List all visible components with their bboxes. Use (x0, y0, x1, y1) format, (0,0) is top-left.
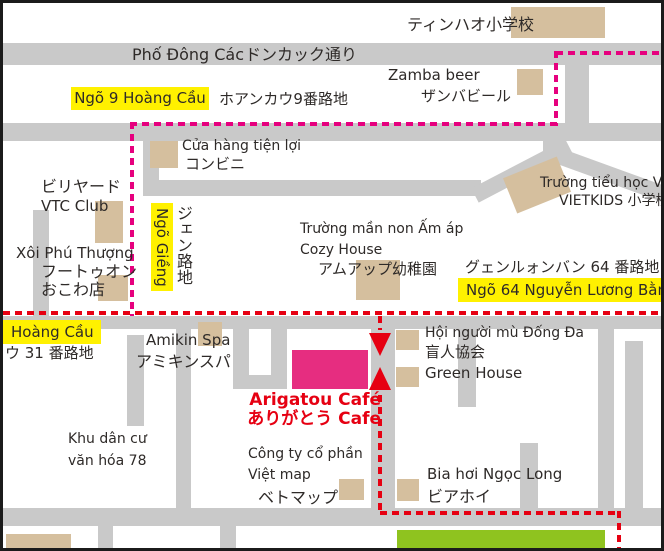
building-green-house (396, 367, 419, 387)
building-blind-association (396, 330, 419, 350)
road-bottom-stub-1 (98, 526, 113, 551)
label-ngo-gieng-jp: ジェン路地 (174, 205, 193, 297)
route-red-exit (617, 511, 621, 551)
building-bia-hoi (397, 479, 419, 501)
label-xoi-phu-thuong-jp2: おこわ店 (41, 280, 105, 299)
label-pho-dong-cac-vi: Phố Đông Các (132, 45, 244, 64)
label-ngo64-vi: Ngõ 64 Nguyễn Lương Bằng (458, 278, 664, 302)
label-blind-association-jp: 盲人協会 (425, 343, 485, 362)
label-ngo64-jp: グェンルォンバン 64 番路地 (465, 258, 659, 277)
road-conbini-horizontal (143, 180, 481, 196)
label-cozy-house-vi: Trường mần non Ấm áp (300, 220, 463, 239)
label-blind-association-vi: Hội người mù Đống Đa (425, 324, 584, 343)
label-pho-dong-cac-jp: ドンカック通り (245, 45, 357, 64)
arigatou-cafe-building (292, 350, 368, 389)
route-arrow-down-icon (369, 333, 391, 356)
road-short-vertical-left (127, 335, 144, 426)
label-cozy-house-en: Cozy House (300, 241, 382, 260)
label-khu-dan-cu-1: Khu dân cư (68, 430, 147, 449)
label-ngo9-hoang-cau: Ngõ 9 Hoàng Cầu (71, 87, 209, 110)
label-convenience-store-vi: Cửa hàng tiện lợi (182, 137, 301, 156)
road-right-vertical-2 (625, 341, 643, 509)
label-ngo-gieng: Ngõ Giềng (151, 203, 173, 291)
label-xoi-phu-thuong-vi: Xôi Phú Thượng (16, 244, 134, 263)
label-khu-dan-cu-2: văn hóa 78 (68, 452, 146, 471)
label-vtc-club-jp: ビリヤード (41, 177, 121, 196)
building-convenience-store (150, 141, 178, 168)
building-zamba-beer (517, 69, 543, 95)
label-vietkids-jp: VIETKIDS 小学校 (559, 192, 664, 211)
label-viet-map-2: Việt map (248, 466, 311, 485)
road-bottom-stub-2 (220, 526, 236, 551)
label-arigatou-cafe-en: Arigatou Café (199, 391, 381, 410)
label-amikin-spa-jp: アミキンスパ (136, 352, 231, 371)
label-zamba-beer-jp: ザンバビール (421, 87, 511, 106)
route-red-bottom (380, 511, 619, 515)
route-pink-across (130, 122, 558, 126)
label-bia-hoi-vi: Bia hơi Ngọc Long (427, 465, 562, 484)
label-xoi-phu-thuong-jp1: フートゥオン (41, 262, 137, 281)
route-pink-top (556, 51, 664, 55)
label-tinhao-school: ティンハオ小学校 (407, 15, 534, 34)
label-amikin-spa-en: Amikin Spa (146, 331, 230, 350)
label-viet-map-jp: ベトマップ (258, 488, 338, 507)
label-bia-hoi-jp: ビアホイ (427, 487, 491, 506)
label-viet-map-1: Công ty cổ phần (248, 445, 363, 464)
building-viet-map (339, 479, 364, 500)
building-bottom-left (6, 534, 71, 551)
label-vtc-club-en: VTC Club (41, 197, 108, 216)
label-ngo9-hoang-cau-jp: ホアンカウ9番路地 (219, 90, 348, 109)
route-pink-ngo-gieng (130, 122, 134, 316)
road-uloop-bottom (233, 375, 287, 389)
route-red-main (3, 311, 664, 315)
label-zamba-beer-en: Zamba beer (388, 66, 480, 85)
road-right-vertical-1 (598, 329, 614, 509)
access-map: ティンハオ小学校 Phố Đông Các ドンカック通り Ngõ 9 Hoàn… (0, 0, 664, 551)
label-arigatou-cafe: Arigatou Café ありがとう Cafe (199, 391, 381, 429)
label-arigatou-cafe-jp: ありがとう Cafe (199, 410, 381, 429)
label-cozy-house-jp: アムアップ幼稚園 (318, 260, 437, 279)
route-red-above-arrow (378, 316, 382, 330)
green-area (397, 530, 605, 551)
route-arrow-up-icon (369, 367, 391, 390)
route-pink-down-1 (554, 51, 558, 126)
road-connector-right (565, 65, 589, 123)
label-green-house: Green House (425, 364, 522, 383)
label-convenience-store-jp: コンビニ (185, 155, 245, 174)
label-ngo31-hoang-cau: Hoàng Cầu (3, 320, 101, 344)
label-vietkids-vi: Trường tiểu học VI (540, 174, 664, 193)
label-ngo31-hoang-cau-jp: ウ 31 番路地 (5, 344, 94, 363)
